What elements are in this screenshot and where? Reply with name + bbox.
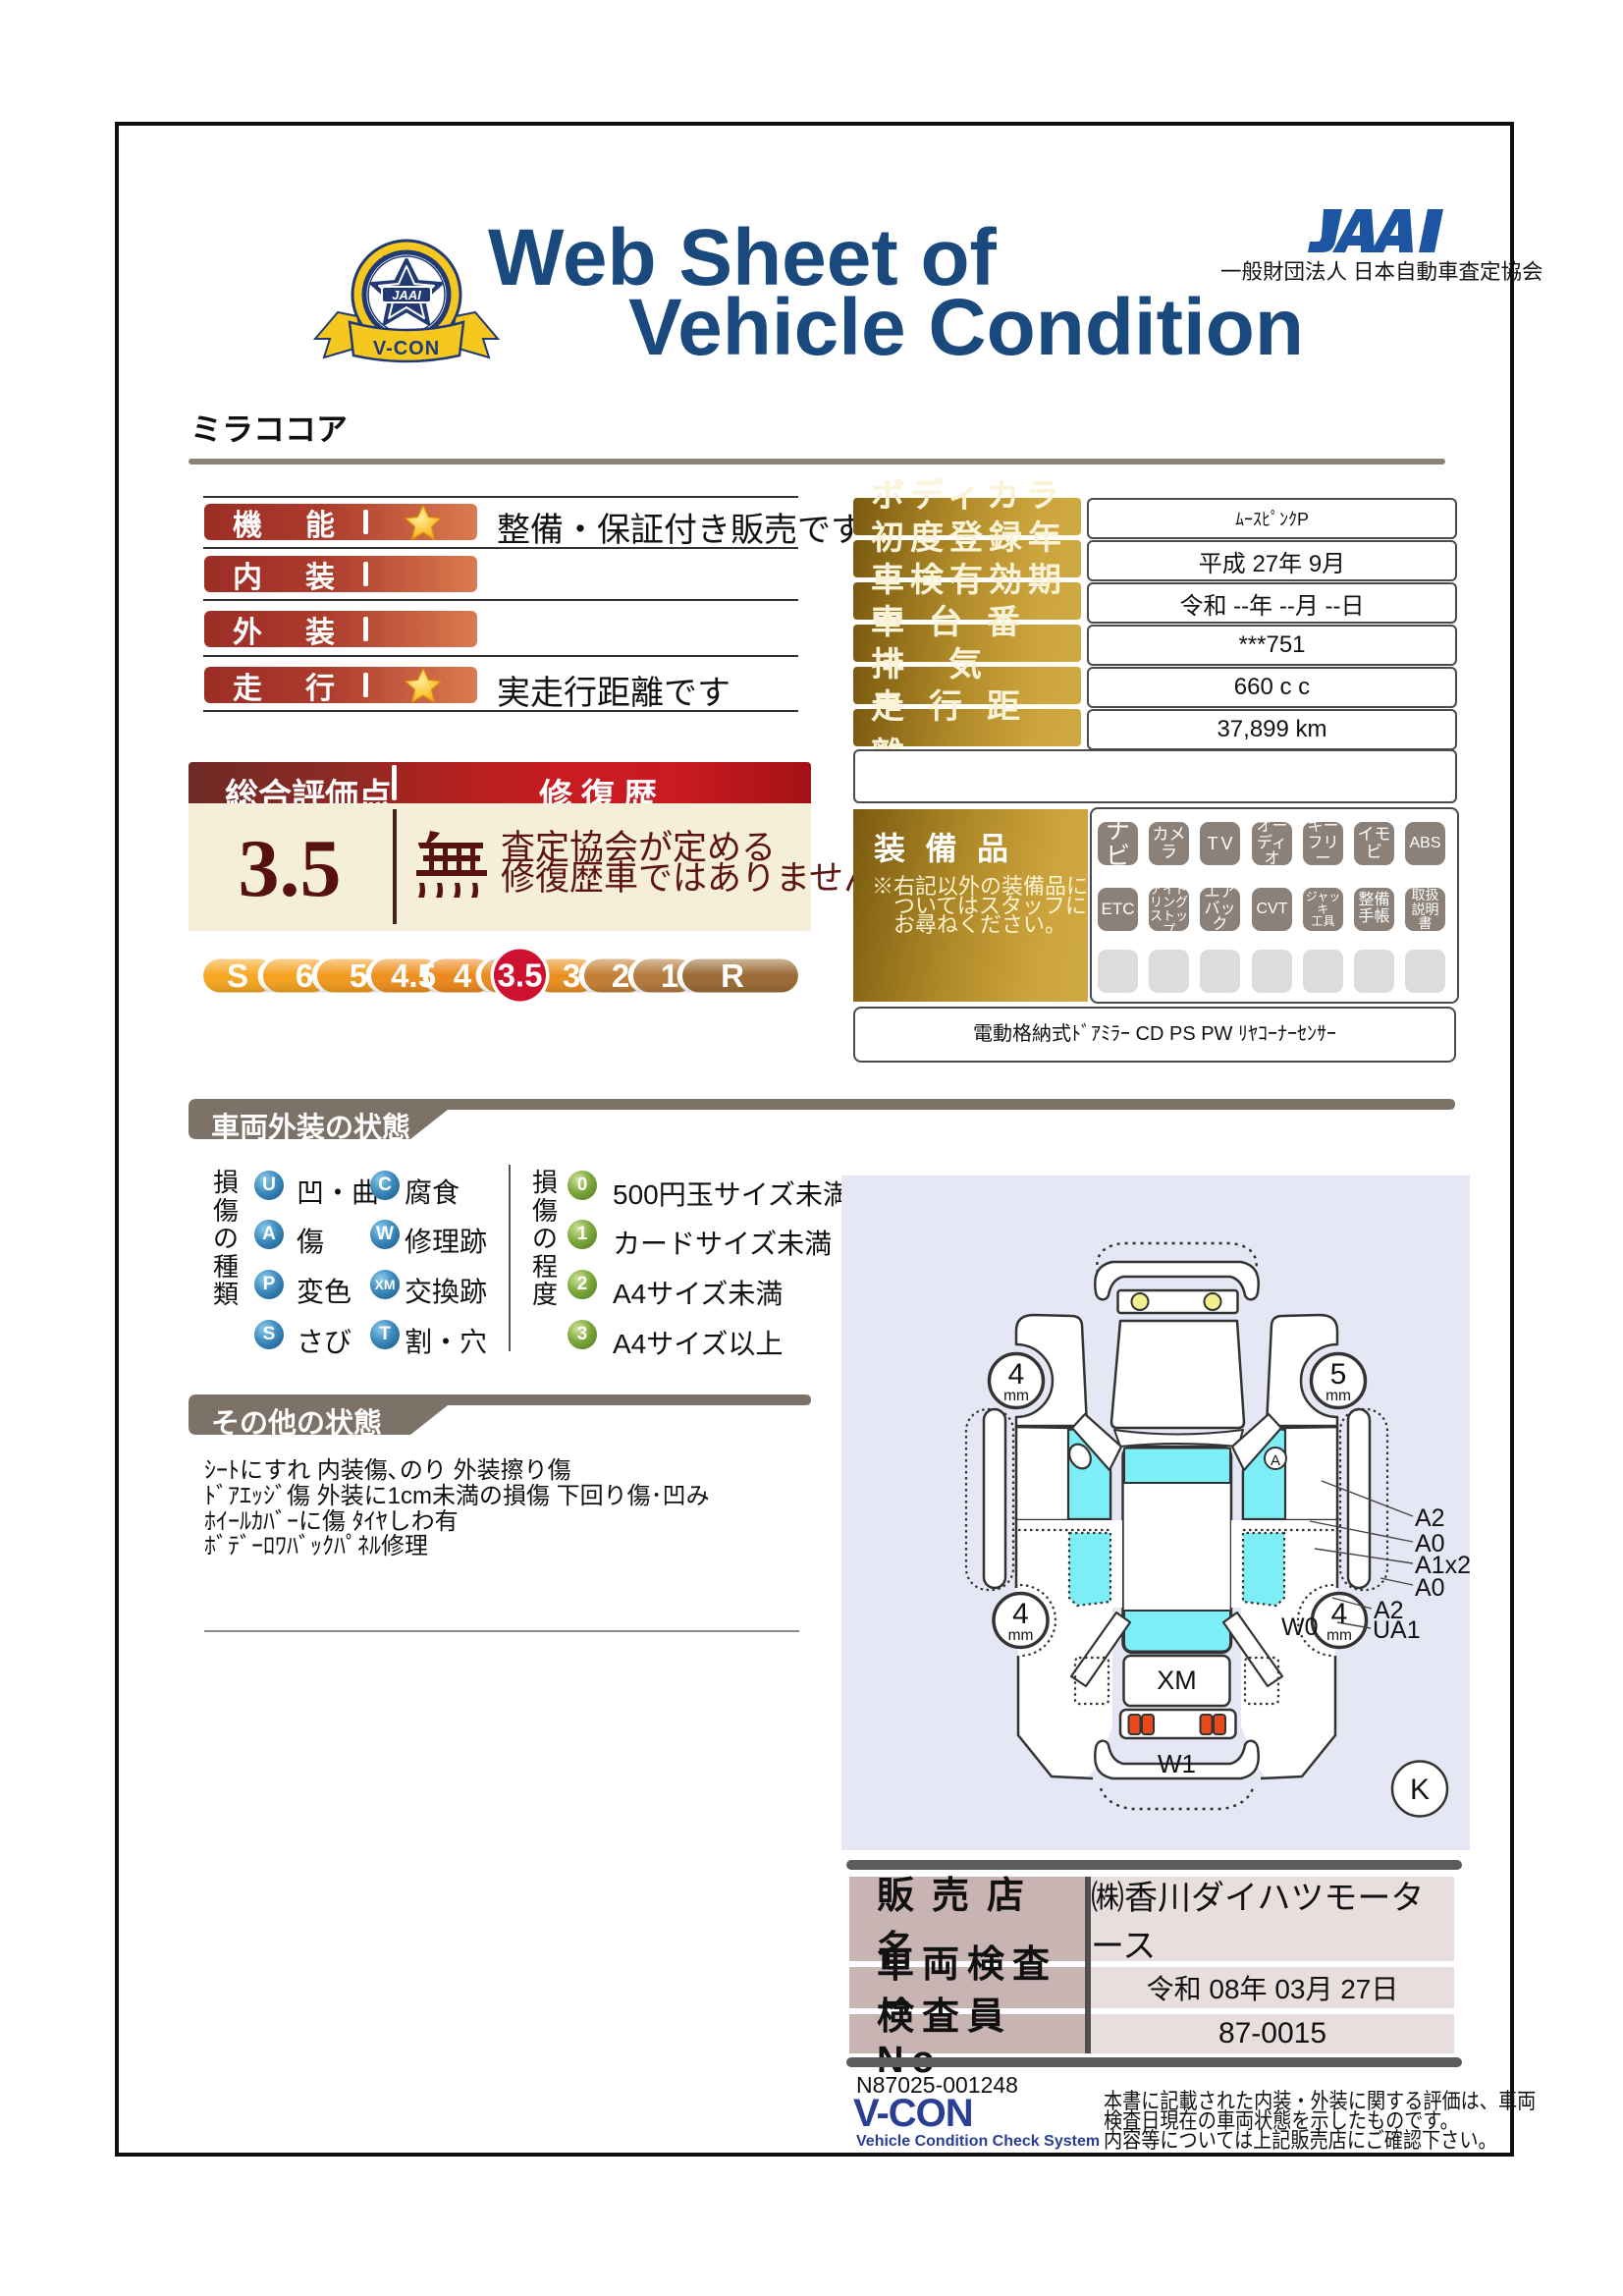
svg-text:mm: mm <box>1326 1627 1352 1644</box>
svg-text:K: K <box>1410 1774 1430 1806</box>
svg-text:A: A <box>1271 1452 1280 1469</box>
svg-text:6: 6 <box>296 957 313 994</box>
svg-text:A0: A0 <box>1415 1574 1445 1602</box>
svg-text:UA1: UA1 <box>1373 1616 1421 1644</box>
svg-text:1: 1 <box>661 957 678 994</box>
svg-text:XM: XM <box>1157 1666 1197 1695</box>
svg-text:4: 4 <box>1331 1598 1348 1630</box>
svg-text:3.5: 3.5 <box>498 957 543 994</box>
svg-text:W1: W1 <box>1158 1749 1196 1778</box>
svg-text:A2: A2 <box>1415 1504 1445 1532</box>
svg-text:S: S <box>227 957 248 994</box>
svg-text:4: 4 <box>1008 1358 1025 1391</box>
svg-text:4.5: 4.5 <box>391 957 436 994</box>
svg-text:4: 4 <box>454 957 472 994</box>
svg-text:W0: W0 <box>1281 1613 1319 1641</box>
svg-text:5: 5 <box>350 957 367 994</box>
svg-text:3: 3 <box>563 957 580 994</box>
svg-text:V-CON: V-CON <box>373 338 440 359</box>
svg-text:2: 2 <box>612 957 629 994</box>
svg-text:JAAI: JAAI <box>392 288 421 302</box>
svg-text:mm: mm <box>1008 1627 1034 1644</box>
svg-text:R: R <box>721 957 744 994</box>
svg-text:mm: mm <box>1325 1388 1351 1404</box>
svg-text:mm: mm <box>1003 1388 1029 1404</box>
svg-text:5: 5 <box>1330 1358 1347 1391</box>
svg-text:4: 4 <box>1012 1598 1029 1630</box>
